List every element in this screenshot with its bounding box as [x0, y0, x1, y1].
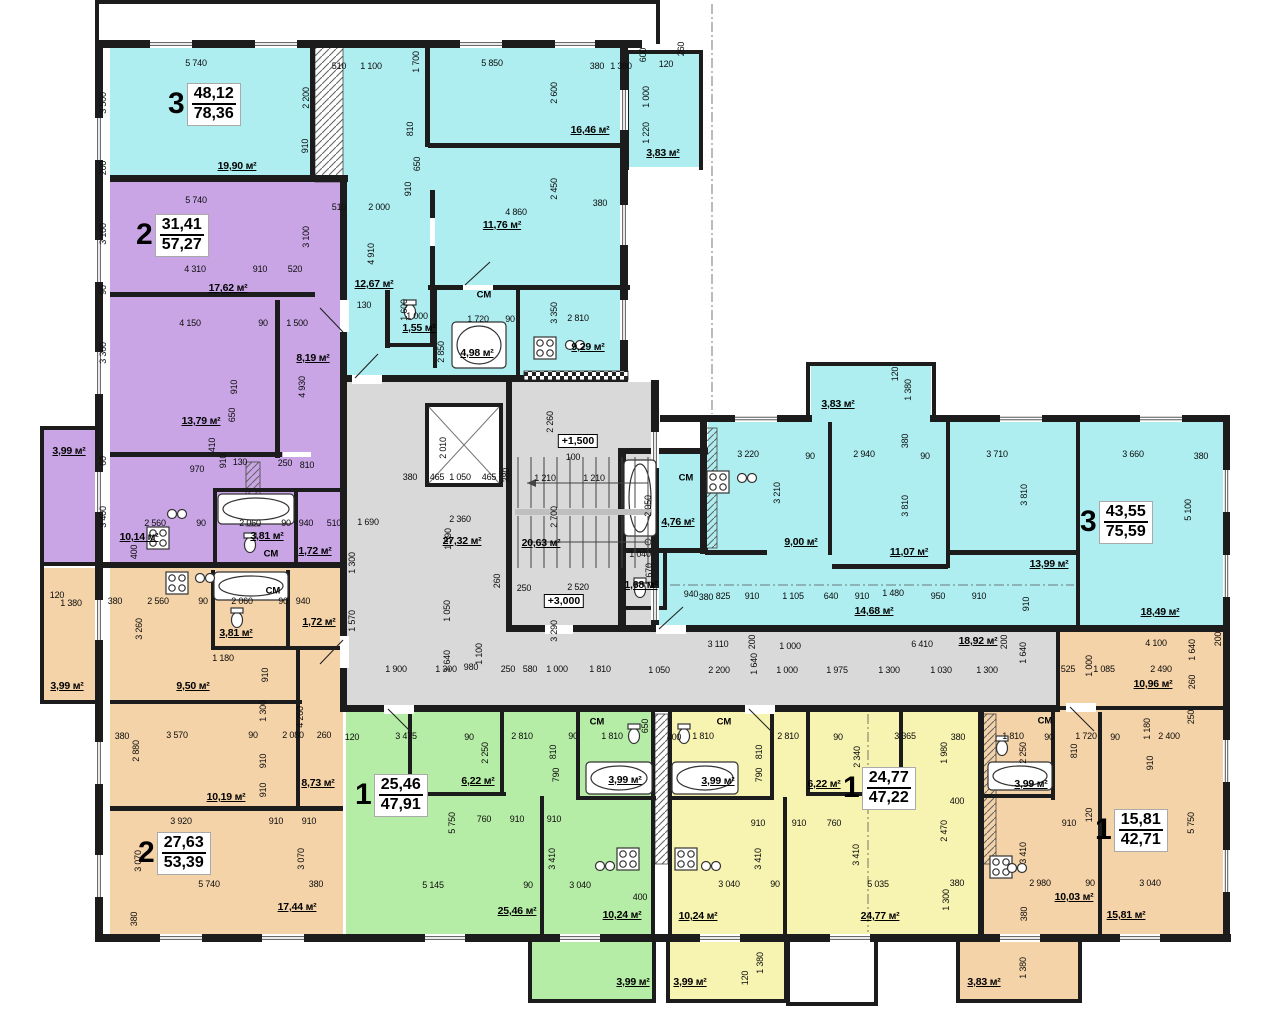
apt2bl-main-fill [110, 568, 343, 936]
floor-plan-drawing [0, 0, 1280, 1010]
floor-plan-canvas: 3 48,1278,36 2 31,4157,27 3 43,5575,59 2… [0, 0, 1280, 1010]
apt1y-main-fill [672, 712, 978, 936]
apt3tl-balcony-fill [628, 53, 701, 167]
apt3r-balcony-fill [811, 365, 931, 430]
apt2bl-balcony-fill [43, 568, 97, 700]
apt2l-balcony-fill [43, 429, 97, 562]
apt1g-balcony-fill [531, 941, 653, 1000]
vent-block [524, 371, 628, 380]
elevator [429, 407, 499, 483]
apt1o-balcony-fill [959, 941, 1078, 1000]
corridor-east-fill [506, 632, 1060, 705]
apt3tl-room1-fill [110, 47, 315, 178]
apt1y-balcony-fill [669, 941, 785, 1000]
